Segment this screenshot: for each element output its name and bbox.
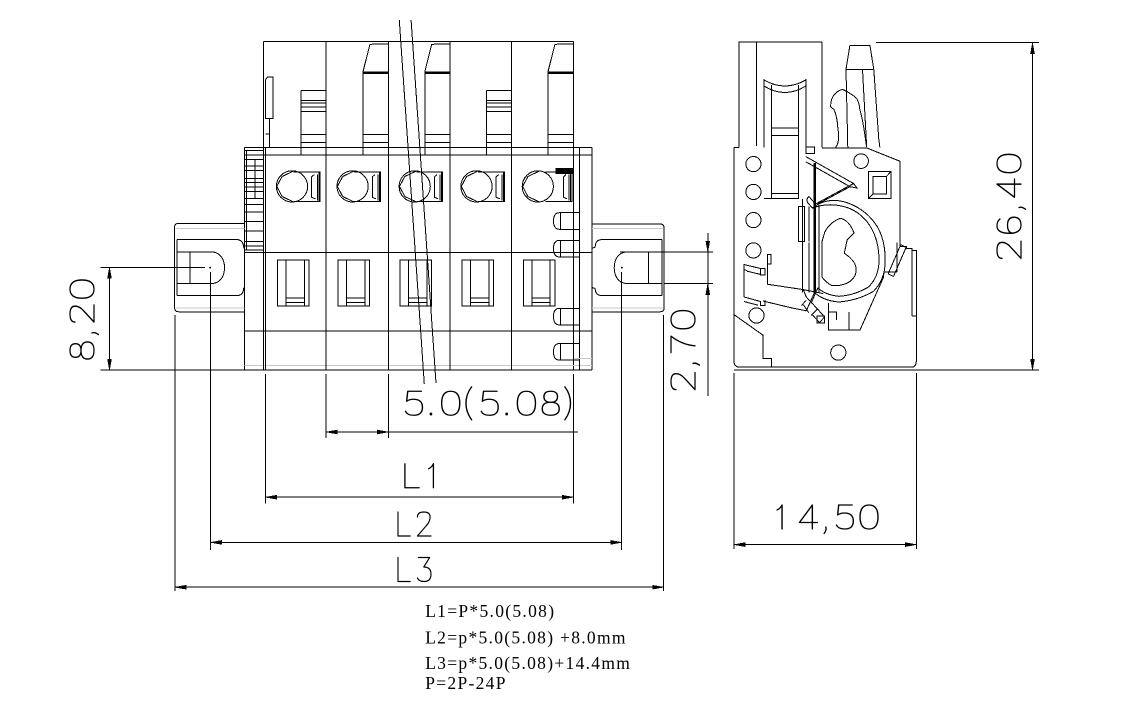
- svg-text:L3=p*5.0(5.08)+14.4mm: L3=p*5.0(5.08)+14.4mm: [425, 653, 631, 673]
- svg-text:L2=p*5.0(5.08) +8.0mm: L2=p*5.0(5.08) +8.0mm: [425, 628, 627, 648]
- svg-text:L1=P*5.0(5.08): L1=P*5.0(5.08): [425, 601, 555, 621]
- svg-text:P=2P-24P: P=2P-24P: [425, 673, 507, 693]
